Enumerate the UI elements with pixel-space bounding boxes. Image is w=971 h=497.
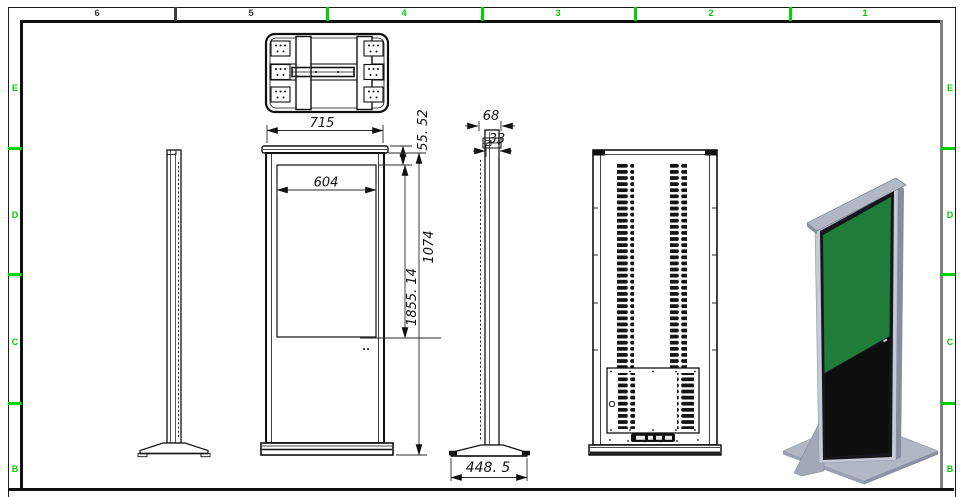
- dim-body-thickness: 33: [489, 132, 506, 147]
- vent-column-left: [617, 163, 634, 368]
- back-view: [589, 150, 721, 455]
- top-view: [266, 34, 388, 112]
- vent-column-right: [670, 163, 687, 368]
- front-view: [261, 146, 393, 455]
- kiosk-orthographic-drawing: 715 604 55. 52 1074 1855. 14: [0, 0, 971, 497]
- dim-display-height: 1074: [422, 230, 437, 263]
- dim-depth: 68: [483, 109, 500, 124]
- render-3d-view: [783, 178, 938, 485]
- drawing-sheet: 6 5 4 3 2 1 E D C B E D C B: [0, 0, 971, 497]
- side-view-middle: [449, 130, 530, 456]
- dim-display-width: 604: [314, 176, 339, 191]
- dim-base-depth: 448. 5: [466, 460, 511, 476]
- side-view-left: [138, 150, 210, 457]
- ir-sensor-dot: [363, 348, 365, 350]
- dim-top-inset: 55. 52: [416, 109, 431, 150]
- dim-overall-height: 1855. 14: [405, 268, 420, 326]
- ir-sensor-dot: [367, 348, 369, 350]
- dim-cabinet-width: 715: [310, 116, 335, 131]
